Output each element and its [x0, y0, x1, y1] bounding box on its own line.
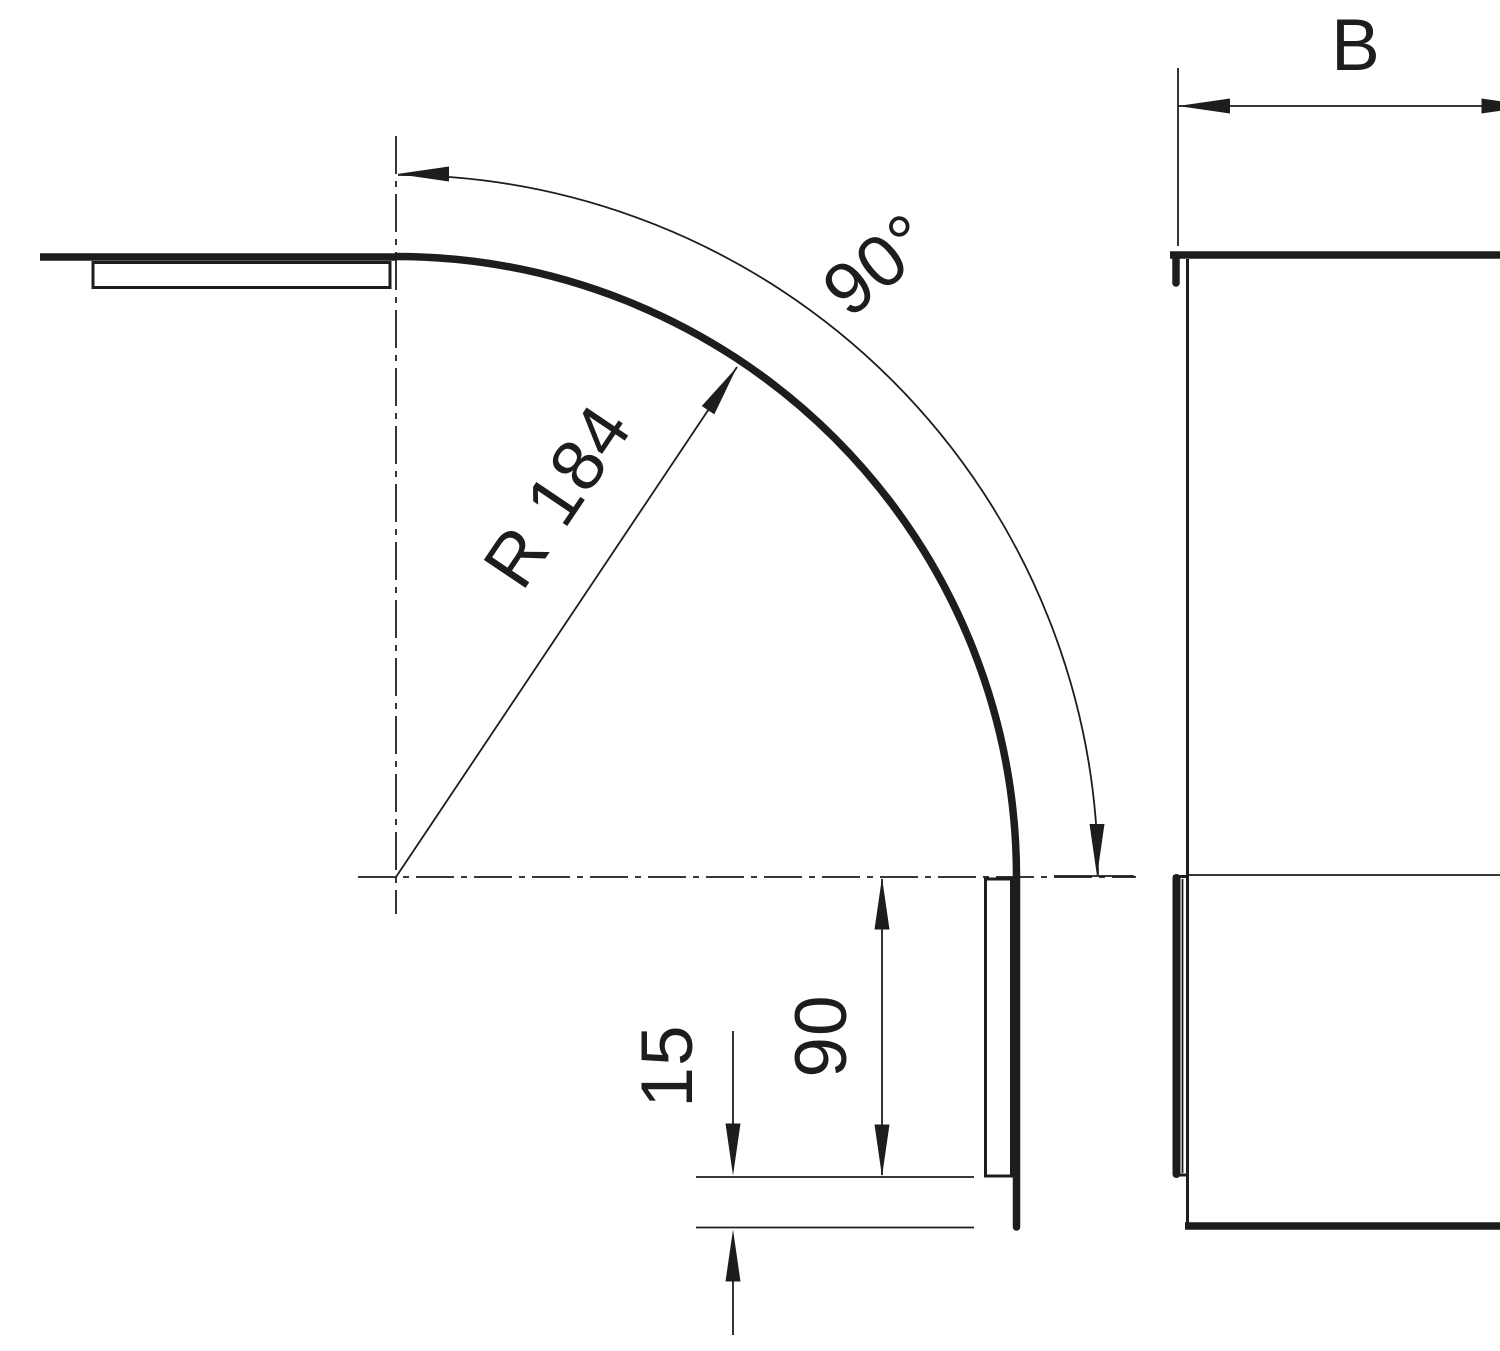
tray-end-horizontal: [93, 263, 390, 288]
length-dim-label: 90: [781, 994, 862, 1077]
length-dim-arrowhead-top: [875, 878, 890, 930]
angle-dim-arrowhead-bottom: [1090, 824, 1105, 876]
overhang-dim-arrowhead-down: [726, 1124, 741, 1176]
overhang-dim-label: 15: [627, 1024, 708, 1107]
technical-drawing: 90° R 184 90 15 B: [40, 16, 1500, 1335]
overhang-dim-arrowhead-up: [726, 1230, 741, 1282]
radius-dim-arrowhead: [702, 367, 737, 414]
angle-dim-arrowhead-top: [397, 167, 449, 182]
radius-dim-label: R 184: [468, 391, 647, 602]
tray-end-vertical: [986, 879, 1012, 1176]
width-dim-label: B: [1331, 16, 1381, 86]
width-dim-arrowhead-right: [1482, 99, 1500, 114]
drawing-canvas: 90° R 184 90 15 B: [40, 16, 1500, 1335]
width-dim-arrowhead-left: [1178, 99, 1230, 114]
angle-dim-label: 90°: [808, 198, 947, 332]
length-dim-arrowhead-bottom: [875, 1125, 890, 1177]
